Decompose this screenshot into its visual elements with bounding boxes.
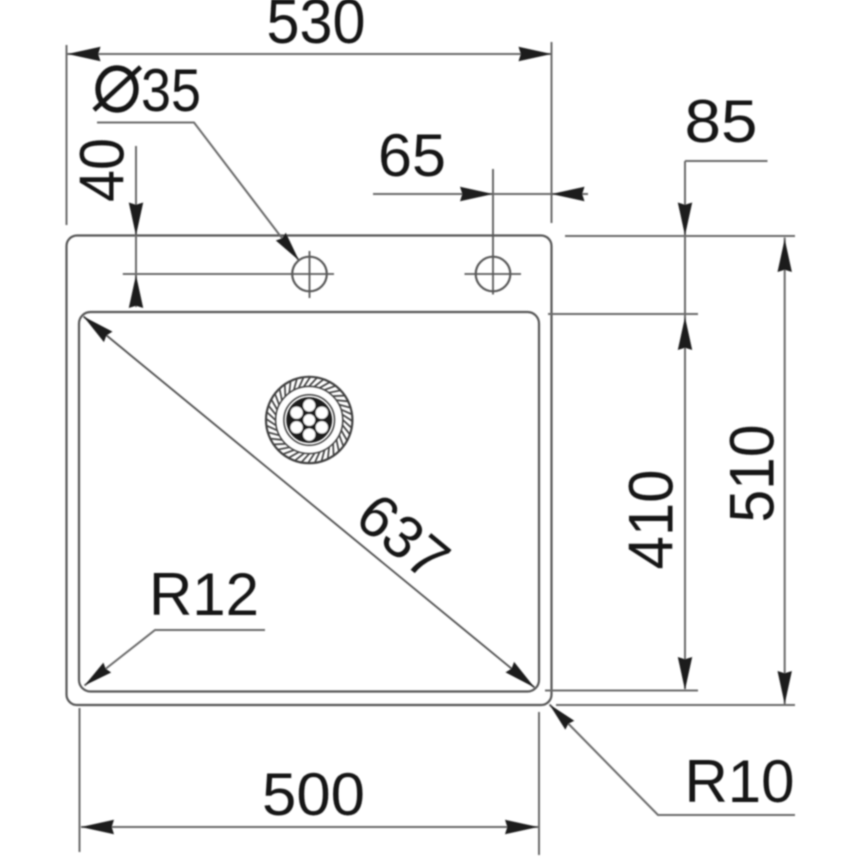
- svg-text:410: 410: [617, 470, 687, 570]
- svg-text:40: 40: [68, 138, 138, 202]
- svg-text:510: 510: [718, 425, 788, 523]
- svg-text:530: 530: [267, 0, 366, 57]
- svg-text:R10: R10: [685, 748, 795, 815]
- svg-text:65: 65: [378, 122, 446, 189]
- svg-text:R12: R12: [149, 561, 259, 628]
- svg-text:637: 637: [344, 480, 461, 593]
- svg-text:500: 500: [262, 761, 365, 828]
- svg-text:85: 85: [685, 88, 758, 155]
- svg-text:35: 35: [141, 57, 201, 124]
